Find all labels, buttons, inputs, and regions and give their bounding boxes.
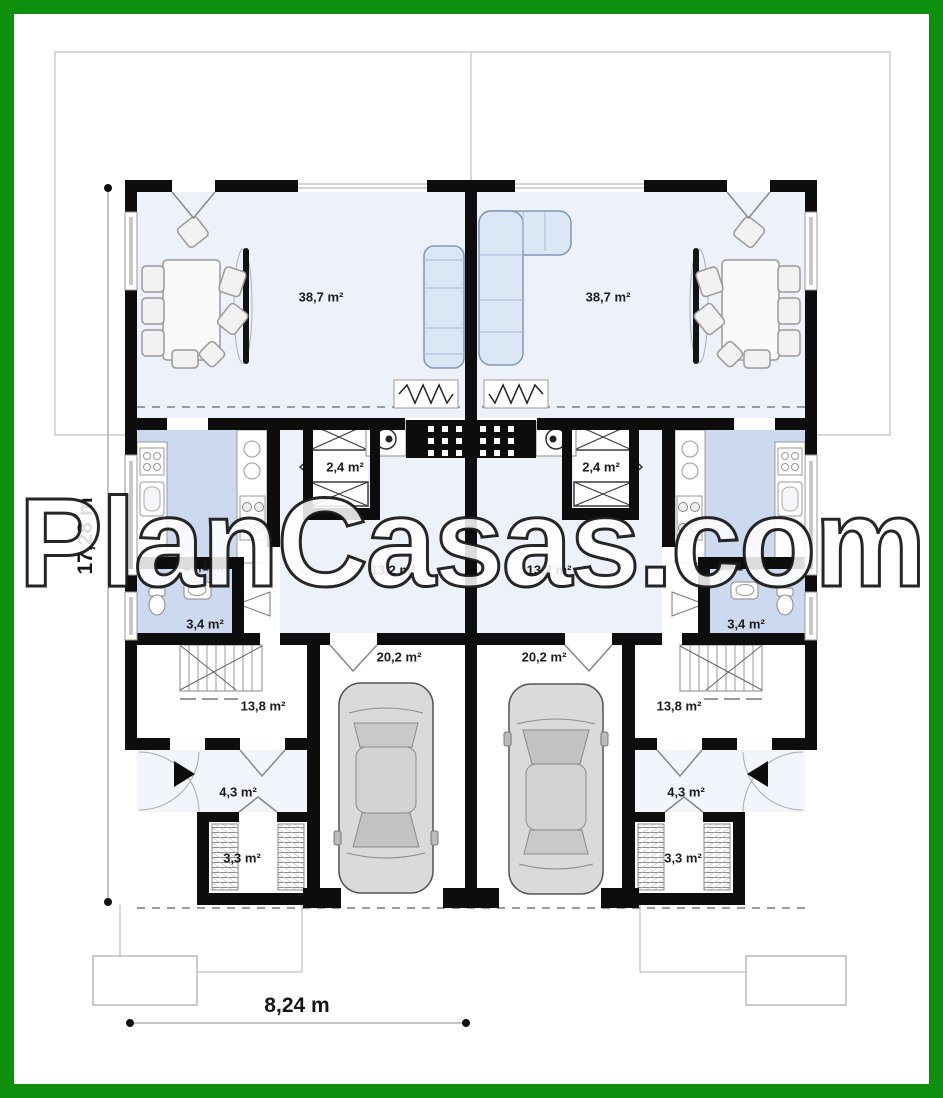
car-left-garage xyxy=(334,683,438,893)
room-label-right-room: 13,8 m² xyxy=(657,699,702,714)
car-right-garage xyxy=(504,684,608,894)
room-label-left-bathroom: 3,4 m² xyxy=(186,617,224,632)
room-label-left-garage: 20,2 m² xyxy=(377,650,422,665)
room-label-right-garage: 20,2 m² xyxy=(522,650,567,665)
room-label-left-room: 13,8 m² xyxy=(241,699,286,714)
room-label-left-entry: 4,3 m² xyxy=(219,785,257,800)
sofa-left-unit xyxy=(424,246,464,368)
room-label-right-entry: 4,3 m² xyxy=(667,785,705,800)
room-label-right-wardrobe: 3,3 m² xyxy=(664,851,702,866)
watermark-text: PlanCasas.com xyxy=(0,480,943,606)
room-label-right-living: 38,7 m² xyxy=(586,290,631,305)
room-label-right-bathroom: 3,4 m² xyxy=(727,617,765,632)
floor-plan-image: 38,7 m² 2,4 m² 10,1 m² 13,2 m² 3,4 m² 20… xyxy=(0,0,943,1098)
room-label-left-wardrobe: 3,3 m² xyxy=(223,851,261,866)
room-label-left-living: 38,7 m² xyxy=(299,290,344,305)
dimension-label-width: 8,24 m xyxy=(264,994,329,1018)
